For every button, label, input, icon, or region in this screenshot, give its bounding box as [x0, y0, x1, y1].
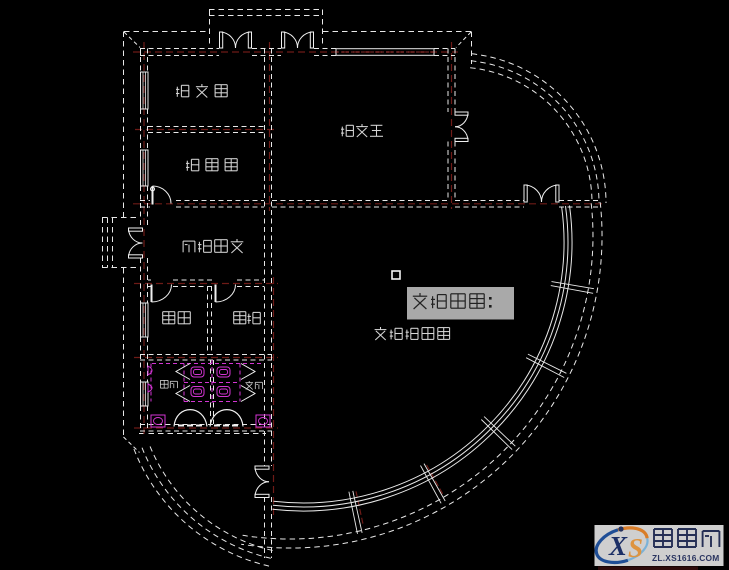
svg-text:S: S: [628, 533, 643, 563]
svg-text:ZL.XS1616.COM: ZL.XS1616.COM: [652, 553, 719, 563]
svg-text:X: X: [608, 531, 628, 561]
